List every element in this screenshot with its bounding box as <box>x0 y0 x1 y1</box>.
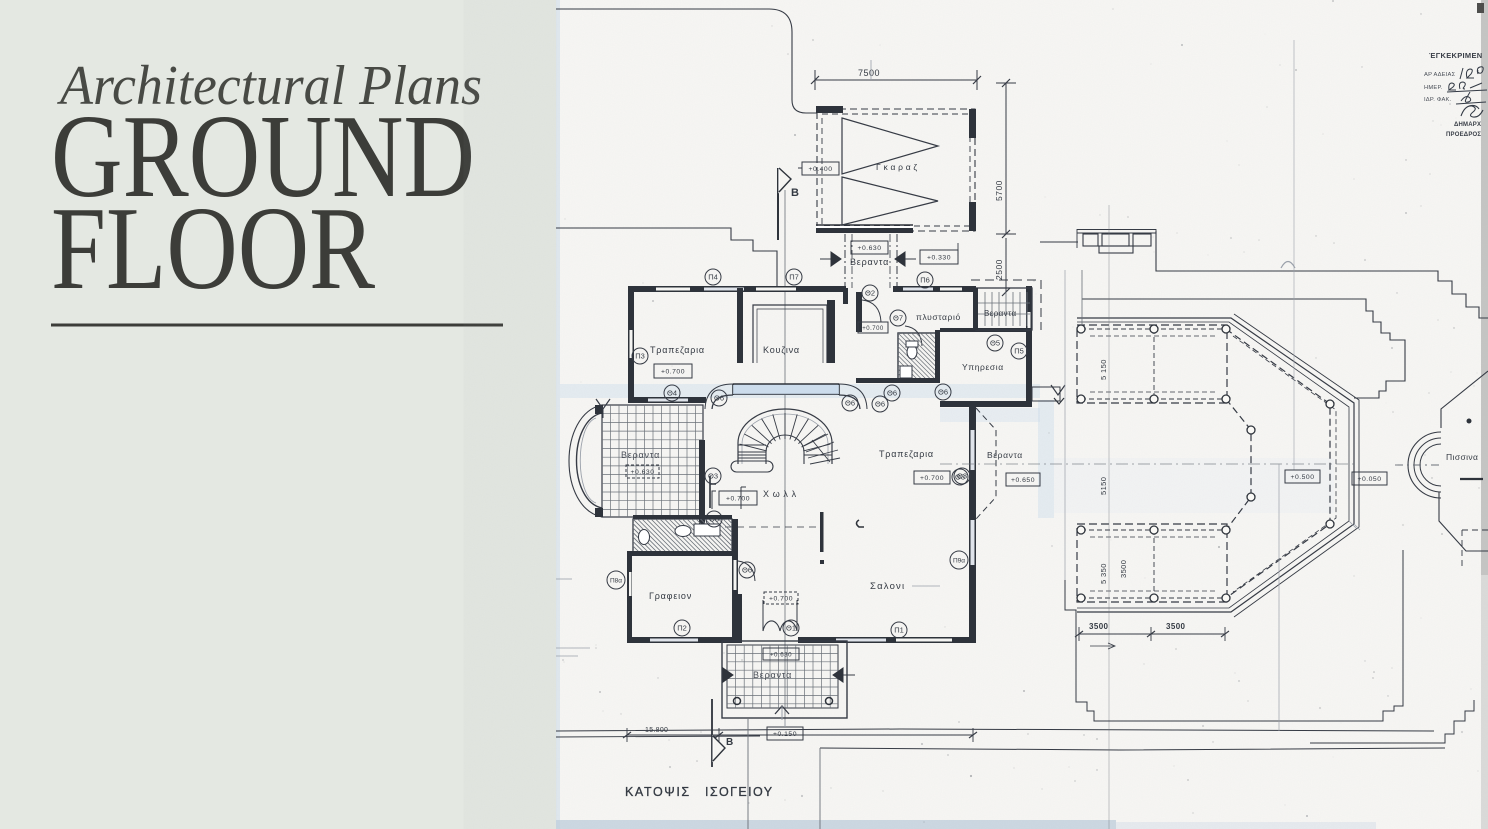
svg-text:3500: 3500 <box>1166 622 1186 631</box>
svg-text:Π3: Π3 <box>635 352 645 361</box>
svg-text:+0.700: +0.700 <box>769 595 793 602</box>
svg-text:Τραπεζαρια: Τραπεζαρια <box>650 345 705 355</box>
svg-text:5700: 5700 <box>994 180 1004 201</box>
svg-text:Χ ω λ λ: Χ ω λ λ <box>763 489 797 499</box>
svg-text:Π9α: Π9α <box>953 558 965 565</box>
svg-text:Κουζινα: Κουζινα <box>763 345 800 355</box>
svg-text:Θ6: Θ6 <box>714 394 724 403</box>
svg-text:+0.500: +0.500 <box>1291 474 1315 481</box>
svg-text:Π7: Π7 <box>789 273 799 282</box>
svg-text:Θ6: Θ6 <box>887 389 897 398</box>
svg-text:πλυσταριό: πλυσταριό <box>916 312 961 322</box>
svg-text:Υπηρεσια: Υπηρεσια <box>962 362 1004 372</box>
svg-text:Πισσινα: Πισσινα <box>1446 452 1478 462</box>
svg-text:Θ3: Θ3 <box>957 472 967 481</box>
svg-text:+0.630: +0.630 <box>858 245 882 252</box>
svg-text:ΠΡΟΕΔΡΟΣ: ΠΡΟΕΔΡΟΣ <box>1446 132 1481 138</box>
svg-text:Βεραντα: Βεραντα <box>753 670 792 680</box>
svg-text:Θ1: Θ1 <box>786 624 796 633</box>
svg-text:Βεραντα: Βεραντα <box>850 257 889 267</box>
svg-text:Θ4: Θ4 <box>667 389 677 398</box>
svg-text:+0.330: +0.330 <box>927 254 951 261</box>
svg-text:Π1: Π1 <box>894 626 904 635</box>
svg-text:Π5: Π5 <box>1014 347 1024 356</box>
svg-text:Π8α: Π8α <box>610 578 622 585</box>
svg-text:Βεραντα: Βεραντα <box>621 450 660 460</box>
svg-text:B: B <box>726 737 733 748</box>
svg-text:ΚΑΤΟΨΙΣ: ΚΑΤΟΨΙΣ <box>625 785 691 799</box>
svg-text:Θ6: Θ6 <box>875 400 885 409</box>
svg-text:Γ κ α ρ α ζ: Γ κ α ρ α ζ <box>876 162 917 172</box>
svg-text:+0.700: +0.700 <box>661 368 685 375</box>
svg-text:ΙΔΡ. ΦΑΚ.: ΙΔΡ. ΦΑΚ. <box>1424 97 1452 103</box>
svg-text:+0.630: +0.630 <box>631 469 655 476</box>
svg-text:Θ5: Θ5 <box>990 339 1000 348</box>
svg-text:5 350: 5 350 <box>1099 563 1108 584</box>
svg-text:+0.700: +0.700 <box>920 475 944 482</box>
svg-text:Π6: Π6 <box>920 276 930 285</box>
svg-text:Π4: Π4 <box>708 273 718 282</box>
svg-text:3500: 3500 <box>1089 622 1109 631</box>
svg-text:Θ7: Θ7 <box>893 314 903 323</box>
svg-text:Τραπεζαρια: Τραπεζαρια <box>879 449 934 459</box>
svg-text:Θ3: Θ3 <box>708 472 718 481</box>
svg-text:+0.150: +0.150 <box>773 731 797 738</box>
svg-text:Βεραντα: Βεραντα <box>987 450 1023 460</box>
svg-text:+0.700: +0.700 <box>726 495 750 502</box>
svg-text:3500: 3500 <box>1119 560 1128 578</box>
svg-text:Γραφειον: Γραφειον <box>649 591 692 601</box>
svg-text:+0.050: +0.050 <box>1358 476 1382 483</box>
svg-text:Θ2: Θ2 <box>865 289 875 298</box>
svg-text:+0.650: +0.650 <box>1011 477 1035 484</box>
svg-text:7500: 7500 <box>858 68 880 78</box>
svg-text:ΗΜΕΡ.: ΗΜΕΡ. <box>1424 85 1443 91</box>
svg-text:Θ6: Θ6 <box>938 388 948 397</box>
svg-text:ΑΡ ΑΔΕΙΑΣ: ΑΡ ΑΔΕΙΑΣ <box>1424 72 1456 78</box>
svg-text:5150: 5150 <box>1099 477 1108 495</box>
svg-text:Π2: Π2 <box>677 624 687 633</box>
svg-text:ΔΗΜΑΡΧ: ΔΗΜΑΡΧ <box>1454 122 1481 128</box>
svg-text:Βεραντα: Βεραντα <box>984 309 1017 318</box>
svg-text:Σαλονι: Σαλονι <box>870 581 905 592</box>
svg-text:B: B <box>791 187 799 199</box>
svg-text:+0.400: +0.400 <box>809 166 833 173</box>
svg-text:ΈΓΚΕΚΡΙΜΕΝ: ΈΓΚΕΚΡΙΜΕΝ <box>1429 51 1483 60</box>
svg-text:FLOOR: FLOOR <box>51 182 376 314</box>
svg-text:5 150: 5 150 <box>1099 359 1108 380</box>
svg-text:+0.700: +0.700 <box>862 326 884 332</box>
svg-text:Θ6: Θ6 <box>845 399 855 408</box>
svg-text:2500: 2500 <box>994 259 1004 280</box>
svg-text:+0.630: +0.630 <box>770 651 792 658</box>
svg-text:Θ6: Θ6 <box>742 566 752 575</box>
svg-text:ΙΣΟΓΕΙΟΥ: ΙΣΟΓΕΙΟΥ <box>705 785 773 799</box>
